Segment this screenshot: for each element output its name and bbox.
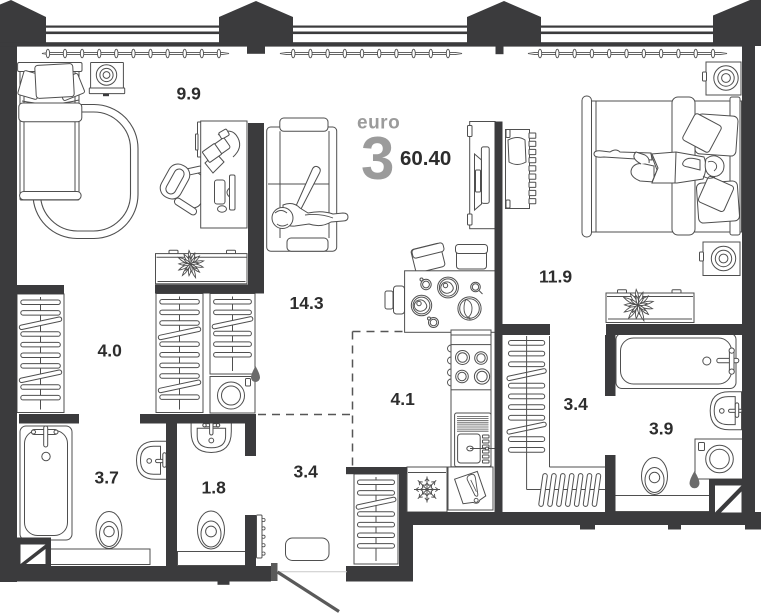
svg-text:11.9: 11.9 xyxy=(539,267,572,287)
svg-text:3.4: 3.4 xyxy=(294,462,319,482)
svg-text:60.40: 60.40 xyxy=(400,147,451,170)
svg-text:14.3: 14.3 xyxy=(290,293,324,313)
svg-text:9.9: 9.9 xyxy=(177,84,202,104)
svg-text:1.8: 1.8 xyxy=(202,478,227,498)
svg-text:3.9: 3.9 xyxy=(649,419,674,439)
svg-text:3.7: 3.7 xyxy=(95,468,119,488)
svg-text:3.4: 3.4 xyxy=(564,394,589,414)
svg-text:4.1: 4.1 xyxy=(391,389,416,409)
svg-text:3: 3 xyxy=(361,125,394,192)
svg-text:4.0: 4.0 xyxy=(98,341,123,361)
